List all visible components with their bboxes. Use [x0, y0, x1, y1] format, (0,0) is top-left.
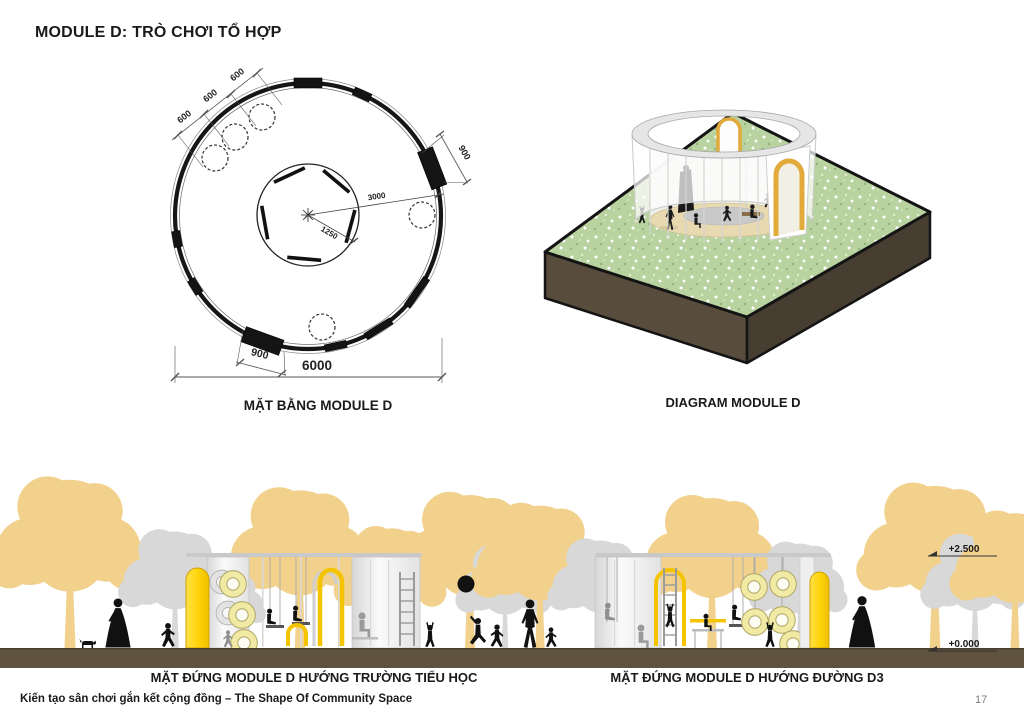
- level-top-label: +2.500: [949, 544, 980, 555]
- plan-play-circles: [202, 104, 435, 340]
- dim-600-label-2: 600: [201, 87, 219, 104]
- elevation-left-caption: MẶT ĐỨNG MODULE D HƯỚNG TRƯỜNG TIỂU HỌC: [128, 670, 500, 685]
- cylinder-structure: [632, 110, 816, 243]
- elevations-strip: +2.500 +0.000: [0, 432, 1024, 668]
- dim-600-label-1: 600: [175, 108, 193, 125]
- plan-caption: MẶT BẰNG MODULE D: [186, 398, 450, 413]
- dim-6000-label: 6000: [302, 358, 332, 373]
- dim-1250-label: 1250: [319, 224, 339, 241]
- dim-3000-label: 3000: [367, 191, 386, 203]
- slide-arch: [186, 568, 209, 648]
- slide-capsule: [810, 572, 829, 648]
- page-title: MODULE D: TRÒ CHƠI TỔ HỢP: [35, 24, 282, 42]
- arch-front: [766, 146, 810, 240]
- module-3d-diagram: [520, 72, 940, 377]
- elevation-right-caption: MẶT ĐỨNG MODULE D HƯỚNG ĐƯỜNG D3: [562, 670, 932, 685]
- level-ground-label: +0.000: [949, 639, 980, 650]
- diagram-caption: DIAGRAM MODULE D: [608, 395, 858, 410]
- portfolio-page: { "page": { "title": "MODULE D: TRÒ CHƠI…: [0, 0, 1024, 724]
- page-number: 17: [975, 694, 987, 706]
- dim-900-top-label: 900: [457, 143, 473, 161]
- dim-600-label-3: 600: [228, 66, 246, 83]
- plan-drawing: 3000 1250 600 600 600 900: [110, 58, 490, 423]
- arch-back: [718, 119, 740, 152]
- ground-strip: [0, 648, 1024, 668]
- footer-project-title: Kiến tạo sân chơi gắn kết cộng đồng – Th…: [20, 693, 412, 705]
